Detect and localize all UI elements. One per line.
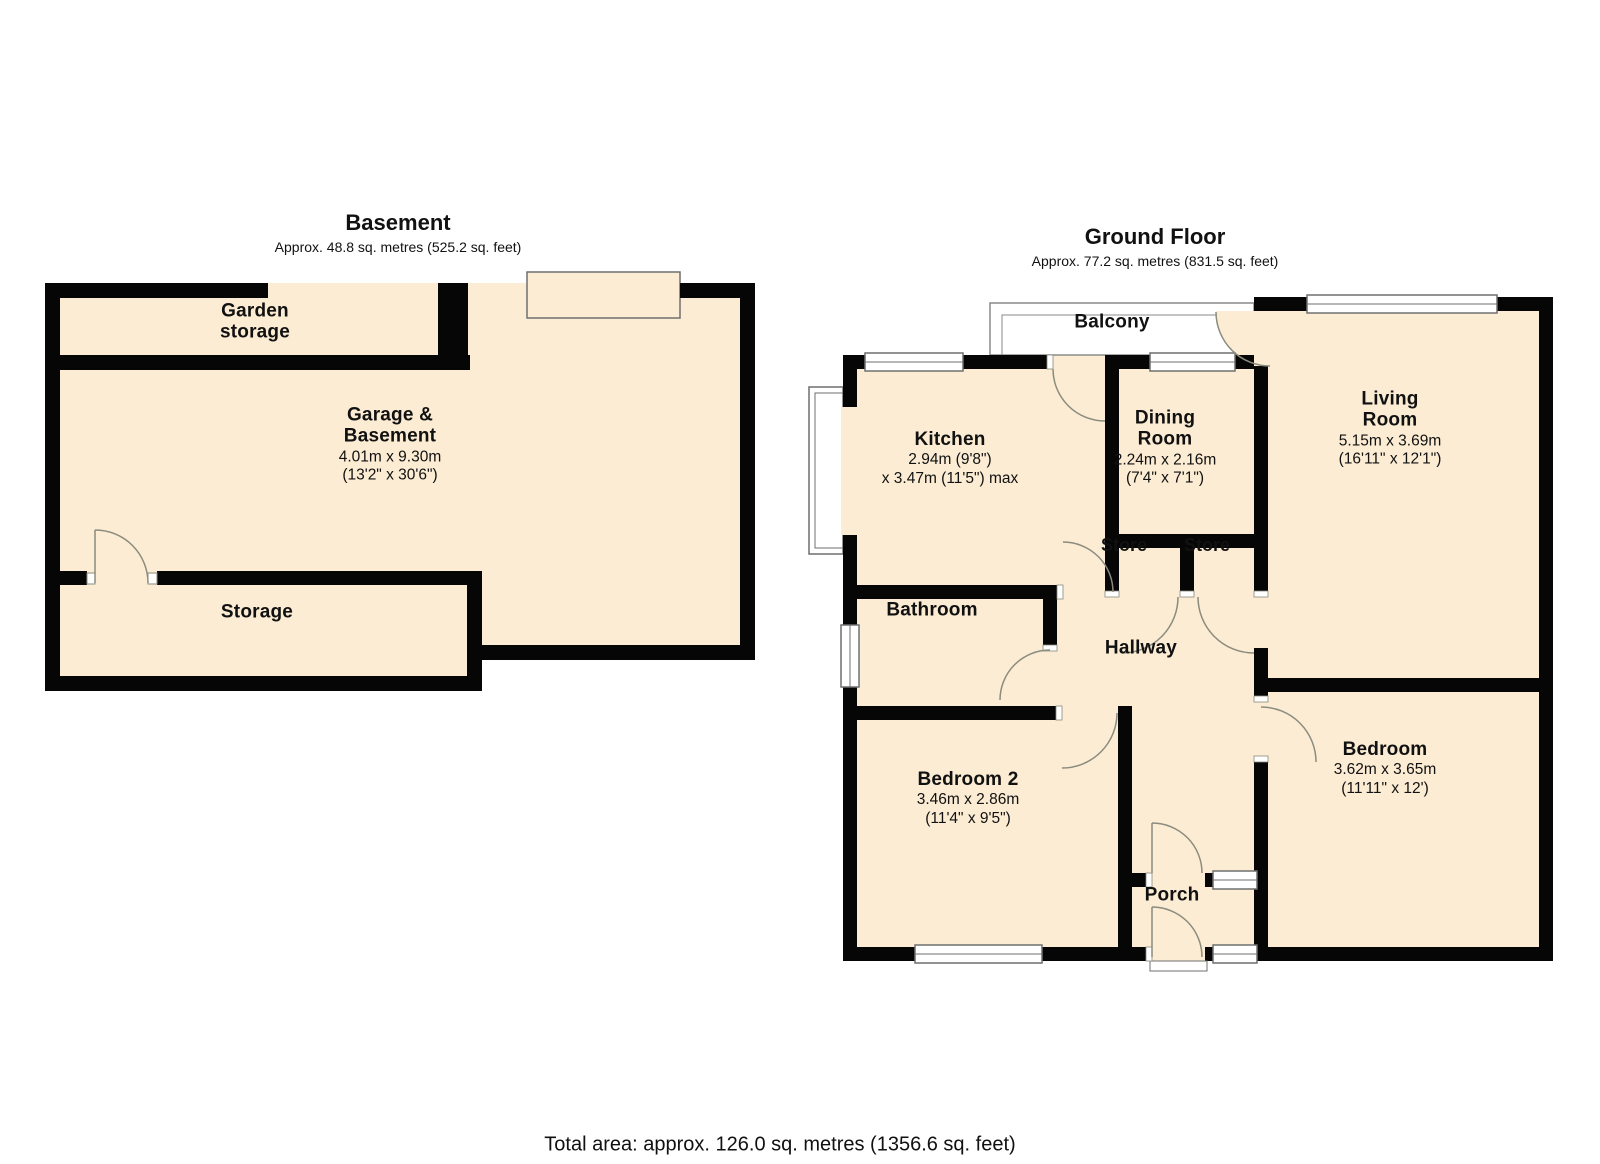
room-label-kitchen: Kitchen 2.94m (9'8") x 3.47m (11'5") max: [882, 429, 1019, 487]
wall-segment: [1043, 599, 1057, 645]
window: [1307, 295, 1497, 313]
window: [1213, 945, 1257, 963]
room-name: Hallway: [1105, 637, 1177, 658]
door-jamb: [87, 573, 95, 584]
room-label-hallway: Hallway: [1105, 637, 1177, 658]
window: [841, 625, 859, 687]
room-name: Bathroom: [886, 599, 977, 620]
wall-segment: [45, 571, 87, 585]
door-jamb: [1057, 585, 1063, 599]
wall-segment: [45, 283, 268, 298]
window: [915, 945, 1042, 963]
room-dim-metric: 4.01m x 9.30m: [333, 448, 448, 465]
room-name: Storage: [221, 601, 293, 622]
wall-segment: [45, 676, 482, 691]
door-jamb: [1254, 696, 1268, 702]
room-name: Garage & Basement: [333, 404, 448, 447]
floorplan-drawing: [0, 0, 1600, 1164]
wall-segment: [1254, 366, 1268, 534]
room-dim-metric: 3.46m x 2.86m: [917, 791, 1020, 808]
wall-segment: [1118, 706, 1132, 961]
room-name: Bedroom: [1334, 739, 1437, 760]
wall-segment: [843, 687, 857, 961]
room-label-dining-room: Dining Room 2.24m x 2.16m (7'4" x 7'1"): [1114, 407, 1217, 486]
wall-segment: [1257, 947, 1553, 961]
room-name: Porch: [1145, 884, 1200, 905]
wall-segment: [1254, 648, 1268, 702]
room-label-store-1: Store: [1101, 535, 1147, 555]
room-name: Garden storage: [209, 301, 301, 344]
wall-segment: [843, 706, 1062, 720]
wall-segment: [467, 645, 755, 660]
ground-floor-area: [843, 297, 1553, 961]
wall-segment: [843, 947, 915, 961]
room-dim-metric: 5.15m x 3.69m: [1339, 432, 1442, 449]
wall-segment: [843, 585, 1057, 599]
room-name: Kitchen: [882, 429, 1019, 450]
wall-segment: [1119, 355, 1150, 369]
bay-window: [809, 387, 843, 554]
door-jamb: [148, 573, 157, 584]
door-jamb: [1254, 591, 1268, 597]
wall-segment: [1205, 873, 1213, 887]
room-label-store-2: Store: [1184, 535, 1230, 555]
floorplan-page: Basement Approx. 48.8 sq. metres (525.2 …: [0, 0, 1600, 1164]
window: [1150, 353, 1235, 371]
wall-segment: [1042, 947, 1152, 961]
door-jamb: [1180, 591, 1194, 597]
room-dim-imperial: (7'4" x 7'1"): [1114, 469, 1217, 486]
room-name: Bedroom 2: [917, 769, 1020, 790]
door-threshold: [1150, 961, 1207, 971]
room-name: Dining Room: [1120, 407, 1210, 450]
room-label-garage-basement: Garage & Basement 4.01m x 9.30m (13'2" x…: [333, 404, 448, 483]
garage-door: [527, 272, 680, 318]
wall-segment: [1254, 548, 1268, 591]
room-name: Store: [1184, 535, 1230, 555]
room-label-bedroom-2: Bedroom 2 3.46m x 2.86m (11'4" x 9'5"): [917, 769, 1020, 827]
plan-name: Basement: [275, 211, 522, 236]
room-label-porch: Porch: [1145, 884, 1200, 905]
wall-segment: [157, 571, 482, 585]
wall-segment: [1205, 947, 1213, 961]
wall-segment: [843, 535, 857, 625]
wall-segment: [467, 571, 482, 691]
window: [1213, 871, 1257, 889]
wall-segment: [963, 355, 1047, 369]
wall-segment: [1254, 762, 1268, 961]
bay-opening: [841, 407, 857, 535]
wall-segment: [45, 283, 60, 691]
room-label-garden-storage: Garden storage: [209, 301, 301, 344]
door-jamb: [1056, 706, 1062, 720]
wall-segment: [1257, 873, 1268, 887]
bay-window-frame: [809, 387, 843, 554]
room-dim-imperial: (13'2" x 30'6"): [333, 466, 448, 483]
window: [865, 353, 963, 371]
wall-segment: [843, 355, 865, 369]
room-dim-metric: 2.24m x 2.16m: [1114, 451, 1217, 468]
door-jamb: [1146, 947, 1152, 961]
plan-name: Ground Floor: [1032, 225, 1279, 250]
door-jamb: [1254, 756, 1268, 762]
wall-segment: [1539, 297, 1553, 961]
room-dim-imperial: (16'11" x 12'1"): [1339, 450, 1442, 467]
room-label-bathroom: Bathroom: [886, 599, 977, 620]
door-jamb: [1047, 355, 1053, 369]
room-dim-metric: 3.62m x 3.65m: [1334, 761, 1437, 778]
room-label-bedroom: Bedroom 3.62m x 3.65m (11'11" x 12'): [1334, 739, 1437, 797]
room-dim-metric: 2.94m (9'8"): [882, 451, 1019, 468]
room-dim-imperial: x 3.47m (11'5") max: [882, 470, 1019, 487]
basement-title: Basement Approx. 48.8 sq. metres (525.2 …: [275, 211, 522, 255]
wall-segment: [1254, 678, 1553, 692]
wall-segment: [1254, 297, 1307, 311]
plan-area: Approx. 48.8 sq. metres (525.2 sq. feet): [275, 239, 522, 255]
total-area-text: Total area: approx. 126.0 sq. metres (13…: [544, 1134, 1015, 1157]
wall-segment: [740, 283, 755, 660]
door-jamb: [1105, 591, 1119, 597]
room-label-storage: Storage: [221, 601, 293, 622]
room-name: Living Room: [1350, 388, 1430, 431]
room-dim-imperial: (11'4" x 9'5"): [917, 810, 1020, 827]
plan-area: Approx. 77.2 sq. metres (831.5 sq. feet): [1032, 253, 1279, 269]
room-dim-imperial: (11'11" x 12'): [1334, 780, 1437, 797]
wall-segment: [45, 355, 470, 370]
room-name: Store: [1101, 535, 1147, 555]
ground-floor-title: Ground Floor Approx. 77.2 sq. metres (83…: [1032, 225, 1279, 269]
room-label-living-room: Living Room 5.15m x 3.69m (16'11" x 12'1…: [1339, 388, 1442, 467]
room-label-balcony: Balcony: [1074, 311, 1149, 332]
basement-floor-area: [45, 283, 755, 691]
room-name: Balcony: [1074, 311, 1149, 332]
